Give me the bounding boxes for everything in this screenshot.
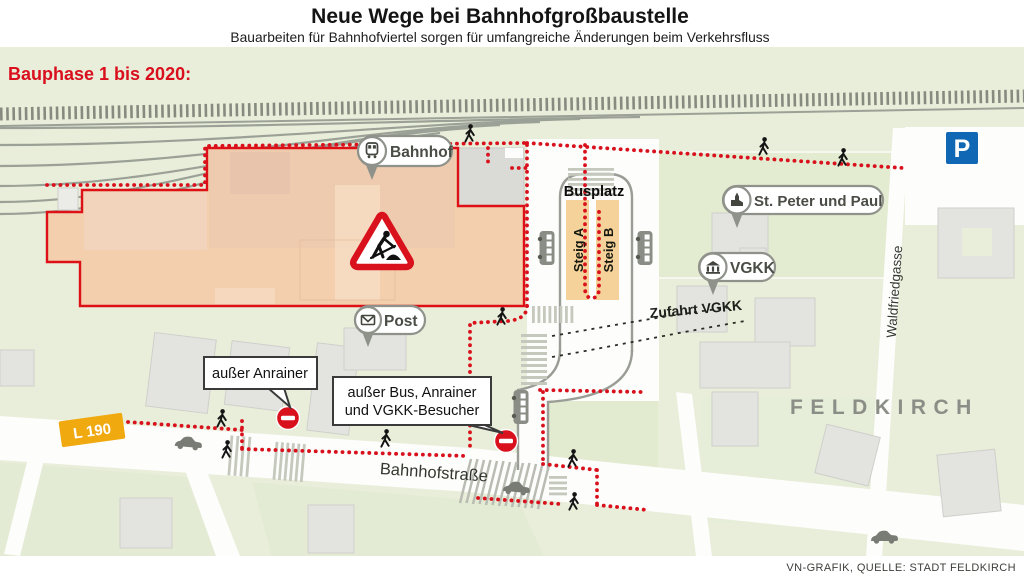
poi-st-peter-label: St. Peter und Paul (754, 193, 882, 210)
parking-sign-letter: P (954, 135, 971, 163)
city-label-feldkirch: FELDKIRCH (790, 396, 979, 419)
poi-bahnhof-label: Bahnhof (390, 144, 454, 161)
bus-icon (538, 231, 555, 265)
parking-sign: P (946, 132, 978, 164)
steig-b-label: Steig B (601, 228, 616, 273)
map-canvas: Bahnhofstraße Waldfriedgasse FELDKIRCH B… (0, 0, 1024, 577)
poi-post-label: Post (384, 313, 418, 330)
callout-anrainer-text: außer Anrainer (212, 366, 308, 382)
callout-bus-line1: außer Bus, Anrainer (348, 385, 477, 401)
poi-vgkk-label: VGKK (730, 260, 776, 277)
credit-line: VN-GRAFIK, QUELLE: STADT FELDKIRCH (786, 562, 1016, 574)
callout-bus-anrainer-vgkk: außer Bus, Anrainer und VGKK-Besucher (333, 377, 503, 433)
infographic-map-feldkirch: Bahnhofstraße Waldfriedgasse FELDKIRCH B… (0, 0, 1024, 577)
no-entry-sign (277, 407, 300, 430)
page-title: Neue Wege bei Bahnhofgroßbaustelle (311, 5, 689, 28)
station-building-notch (505, 148, 523, 158)
busplatz-label: Busplatz (564, 184, 624, 200)
callout-bus-line2: und VGKK-Besucher (345, 403, 480, 419)
page-subtitle: Bauarbeiten für Bahnhofviertel sorgen fü… (230, 29, 769, 45)
no-entry-sign (495, 430, 518, 453)
steig-a-label: Steig A (571, 227, 586, 272)
bus-icon (512, 390, 529, 424)
bus-icon (636, 231, 653, 265)
phase-label: Bauphase 1 bis 2020: (8, 64, 191, 84)
